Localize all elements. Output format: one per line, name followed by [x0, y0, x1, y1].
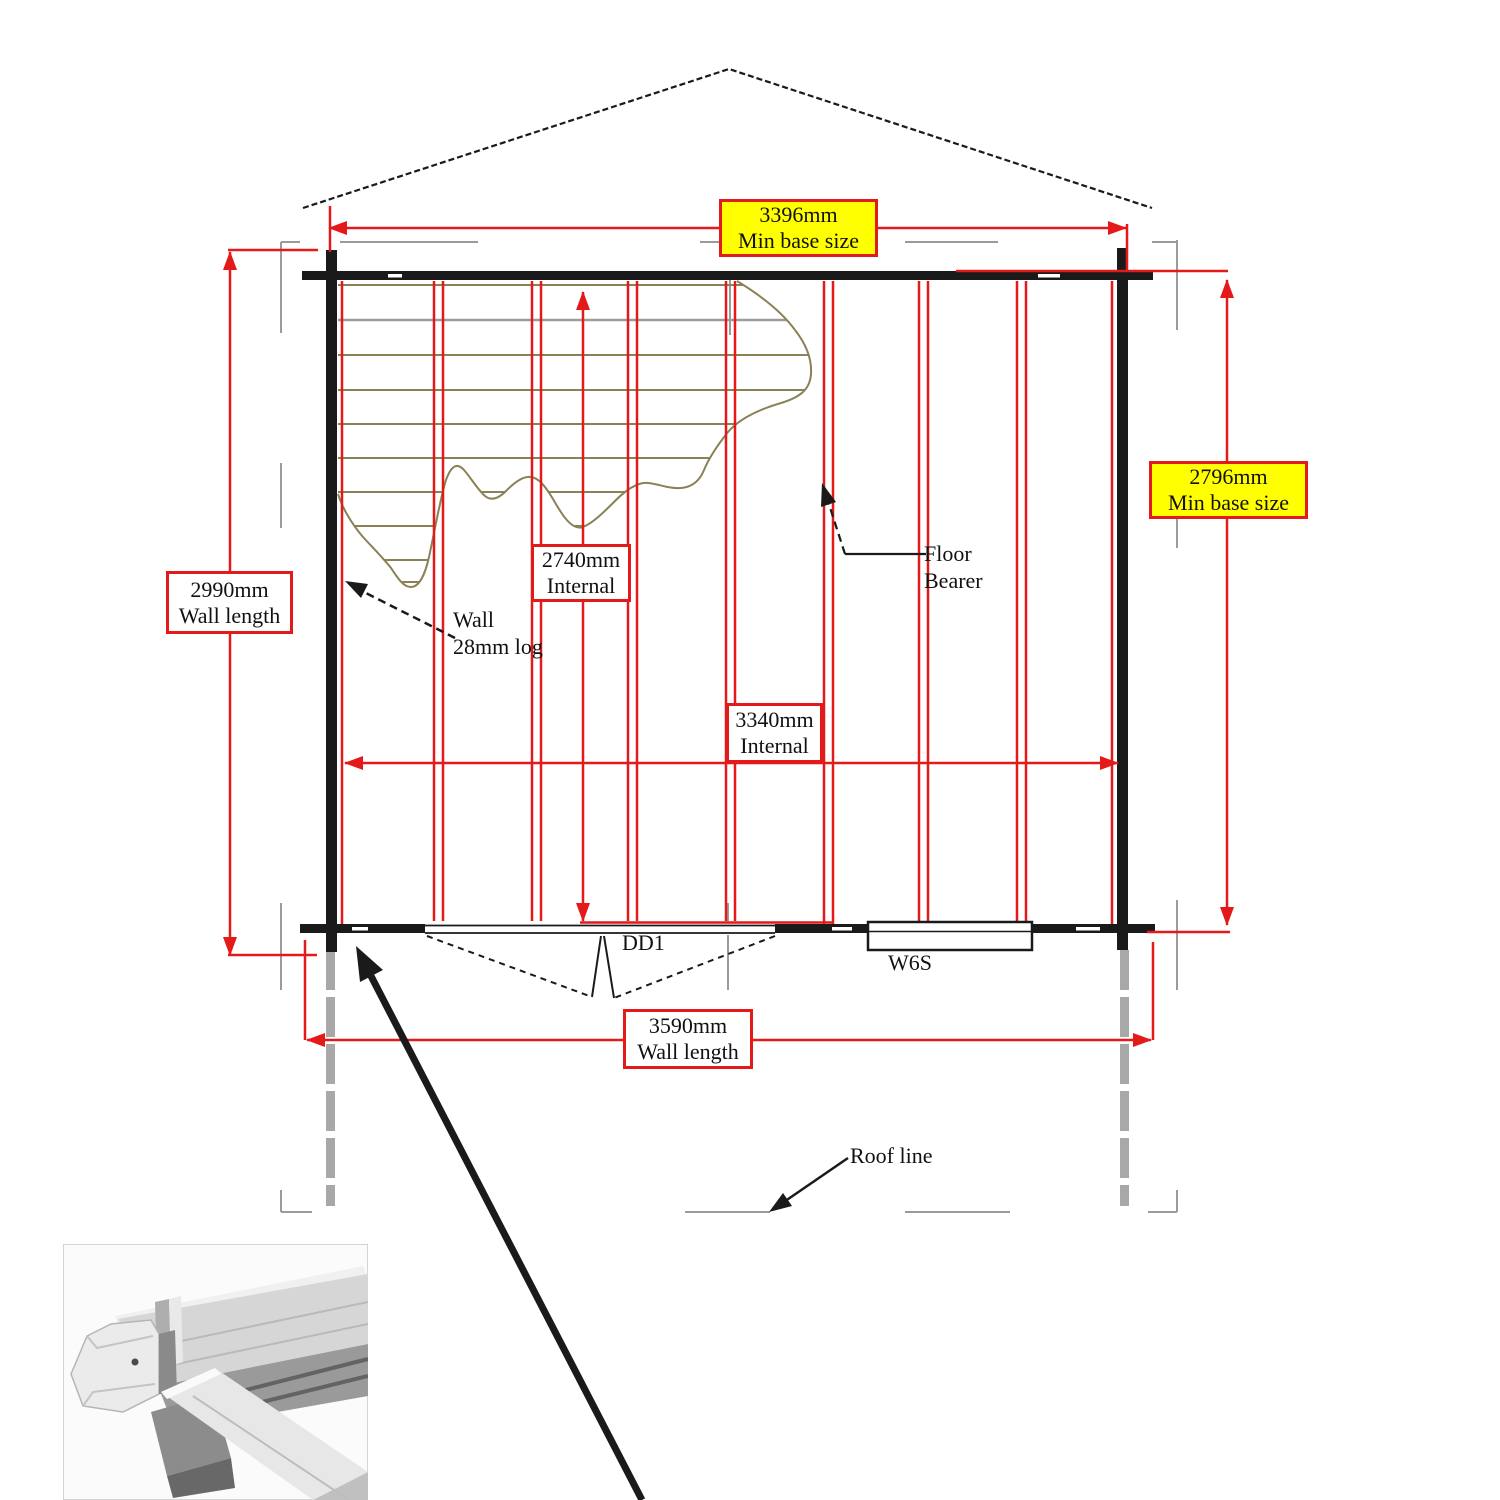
dim-value: 3396mm	[759, 202, 837, 228]
door-label: DD1	[622, 929, 665, 956]
floor-bearer-lines	[333, 281, 1121, 924]
window-label: W6S	[888, 949, 932, 976]
door-dd1	[425, 921, 775, 998]
wall-note: Wall 28mm log	[453, 606, 543, 660]
dim-value: 2796mm	[1189, 464, 1267, 490]
dim-label-internal-depth: 2740mm Internal	[531, 544, 631, 602]
dim-value: 2990mm	[190, 577, 268, 603]
dim-value: 2740mm	[542, 547, 620, 573]
dim-caption: Min base size	[1168, 490, 1289, 516]
window-w6s	[868, 922, 1032, 950]
dim-caption: Wall length	[637, 1039, 738, 1065]
wall-note-leader	[352, 586, 455, 638]
floor-bearer-line2: Bearer	[924, 567, 983, 594]
wall-note-line1: Wall	[453, 606, 543, 633]
floor-bearer-line1: Floor	[924, 540, 983, 567]
dim-caption: Min base size	[738, 228, 859, 254]
door-swing-left	[427, 936, 592, 997]
dim-caption: Internal	[547, 573, 615, 599]
dim-label-wall-front: 3590mm Wall length	[623, 1009, 753, 1069]
dim-caption: Wall length	[179, 603, 280, 629]
roof-line-label: Roof line	[850, 1142, 933, 1169]
roof-line-leader	[778, 1158, 848, 1206]
floor-plan-diagram: 3396mm Min base size 2796mm Min base siz…	[0, 0, 1500, 1500]
dim-label-base-width: 3396mm Min base size	[719, 199, 878, 257]
leader-arrows	[345, 483, 926, 1212]
floor-break-line	[338, 281, 811, 587]
photo-pointer-arrow	[356, 946, 642, 1500]
dim-value: 3590mm	[649, 1013, 727, 1039]
dim-label-wall-side: 2990mm Wall length	[166, 571, 293, 634]
dim-caption: Internal	[740, 733, 808, 759]
dim-label-base-depth: 2796mm Min base size	[1149, 461, 1308, 519]
roof-peak	[303, 69, 1152, 208]
dim-label-internal-width: 3340mm Internal	[726, 703, 823, 763]
wall-note-line2: 28mm log	[453, 633, 543, 660]
floor-hatch	[336, 285, 816, 582]
wall-note-arrowhead	[345, 581, 368, 598]
roof-line-arrowhead	[769, 1193, 792, 1212]
dim-value: 3340mm	[735, 707, 813, 733]
door-leaves-center	[592, 936, 614, 998]
floor-bearer-note: Floor Bearer	[924, 540, 983, 594]
corner-detail-photo	[63, 1244, 368, 1500]
